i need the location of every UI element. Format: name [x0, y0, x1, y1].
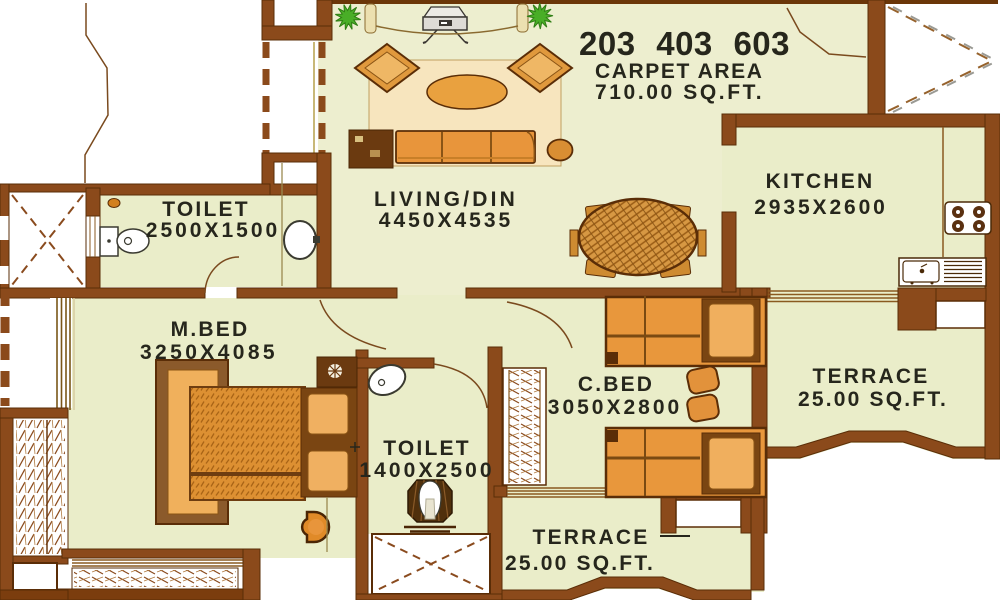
svg-text:TOILET: TOILET: [383, 437, 470, 460]
svg-text:C.BED: C.BED: [578, 373, 654, 396]
svg-text:1400X2500: 1400X2500: [359, 459, 494, 482]
svg-text:710.00 SQ.FT.: 710.00 SQ.FT.: [595, 81, 764, 104]
svg-text:203 403 603: 203 403 603: [579, 25, 790, 62]
svg-text:TERRACE: TERRACE: [813, 365, 930, 388]
svg-text:3250X4085: 3250X4085: [140, 341, 278, 364]
svg-text:2500X1500: 2500X1500: [146, 219, 280, 242]
svg-text:TOILET: TOILET: [162, 198, 249, 221]
svg-text:25.00 SQ.FT.: 25.00 SQ.FT.: [798, 388, 948, 411]
svg-text:CARPET AREA: CARPET AREA: [595, 60, 764, 83]
svg-text:4450X4535: 4450X4535: [379, 209, 513, 232]
svg-text:TERRACE: TERRACE: [533, 526, 650, 549]
svg-text:25.00 SQ.FT.: 25.00 SQ.FT.: [505, 552, 655, 575]
svg-text:M.BED: M.BED: [171, 318, 250, 341]
svg-text:3050X2800: 3050X2800: [548, 396, 682, 419]
svg-text:LIVING/DIN: LIVING/DIN: [374, 188, 518, 211]
svg-text:KITCHEN: KITCHEN: [766, 170, 875, 193]
svg-text:2935X2600: 2935X2600: [754, 196, 888, 219]
